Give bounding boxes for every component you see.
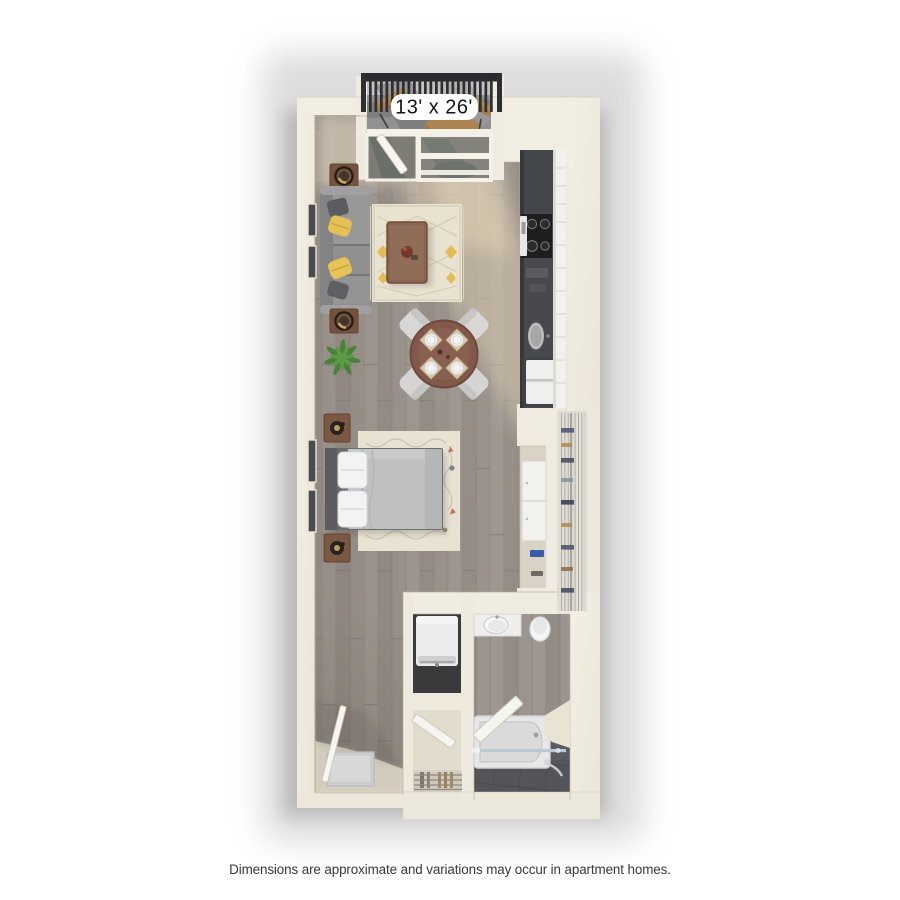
svg-text:13' x 26': 13' x 26' — [395, 97, 473, 119]
